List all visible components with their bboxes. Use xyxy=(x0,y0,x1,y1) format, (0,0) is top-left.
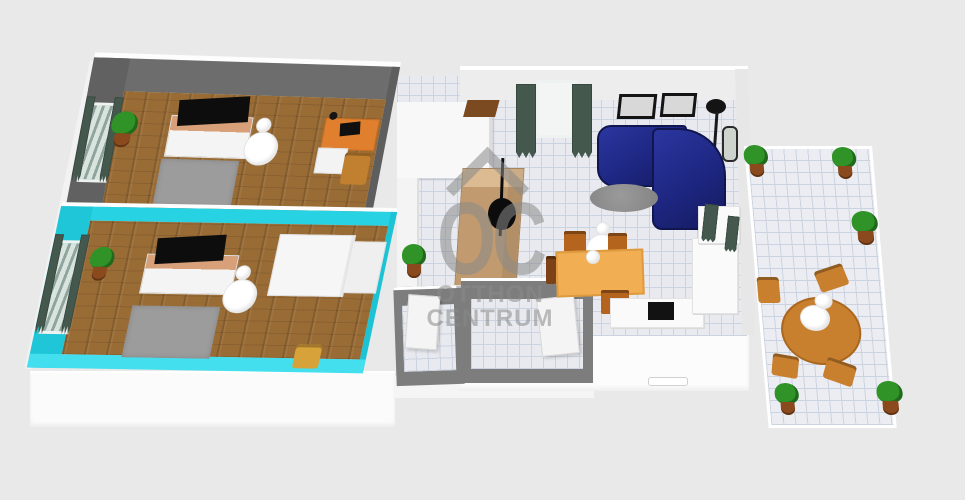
floorplan-scene: OC OTTHON CENTRUM xyxy=(0,0,965,500)
terrace xyxy=(744,146,897,428)
living-curtain-left xyxy=(516,84,536,158)
vase xyxy=(586,250,600,264)
tv xyxy=(154,235,227,264)
watermark: OC OTTHON CENTRUM xyxy=(425,155,555,340)
living-curtain-right xyxy=(572,84,592,158)
picture-frame xyxy=(660,93,698,117)
stove xyxy=(648,302,674,320)
watermark-line2: CENTRUM xyxy=(425,305,555,333)
bedroom-1 xyxy=(66,52,401,215)
bedroom-chair xyxy=(292,344,323,368)
terrace-chair xyxy=(756,277,780,303)
potted-plant xyxy=(743,145,770,177)
dining-table xyxy=(555,248,645,297)
bedroom-2 xyxy=(27,202,398,373)
potted-plant xyxy=(774,383,801,415)
bedroom-2-rug xyxy=(121,305,220,358)
living-window xyxy=(536,80,578,138)
potted-plant xyxy=(851,211,880,245)
picture-frame xyxy=(617,94,658,119)
wall-mirror xyxy=(722,126,738,162)
terrace-chair xyxy=(822,357,857,388)
coffee-table xyxy=(590,184,658,212)
living-wall-north xyxy=(460,66,742,100)
potted-plant xyxy=(402,244,426,278)
potted-plant xyxy=(831,147,858,179)
bedroom-1-rug xyxy=(152,159,239,209)
tv xyxy=(177,96,251,126)
exterior-wall-south-left xyxy=(30,371,395,427)
watermark-logo-text: OC xyxy=(425,189,555,292)
terrace-plate-small xyxy=(814,293,833,309)
terrace-chair xyxy=(813,263,849,293)
laptop xyxy=(340,121,361,136)
potted-plant xyxy=(876,381,905,415)
front-door-handle xyxy=(648,377,688,386)
terrace-chair xyxy=(771,353,799,379)
